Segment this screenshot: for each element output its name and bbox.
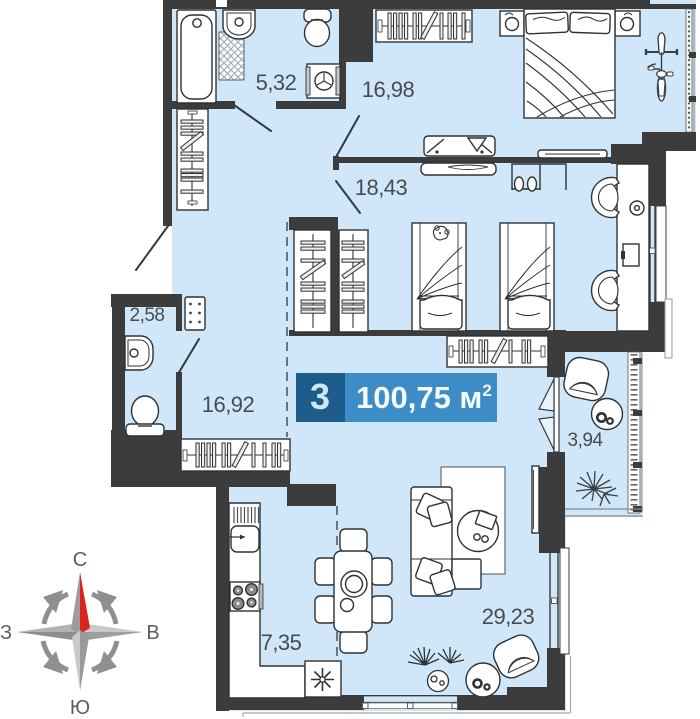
svg-text:З: З <box>0 622 12 644</box>
svg-text:16,98: 16,98 <box>362 77 415 102</box>
svg-text:29,23: 29,23 <box>482 604 535 629</box>
svg-text:18,43: 18,43 <box>355 175 408 200</box>
svg-text:100,75 м2: 100,75 м2 <box>356 380 492 415</box>
svg-text:Ю: Ю <box>70 697 90 719</box>
svg-text:16,92: 16,92 <box>202 392 255 417</box>
svg-text:7,35: 7,35 <box>261 630 302 655</box>
svg-text:С: С <box>73 549 87 571</box>
svg-text:2,58: 2,58 <box>130 305 165 326</box>
svg-text:3: 3 <box>310 376 330 417</box>
svg-text:В: В <box>146 622 159 644</box>
svg-text:5,32: 5,32 <box>256 70 297 95</box>
svg-text:3,94: 3,94 <box>568 430 604 451</box>
